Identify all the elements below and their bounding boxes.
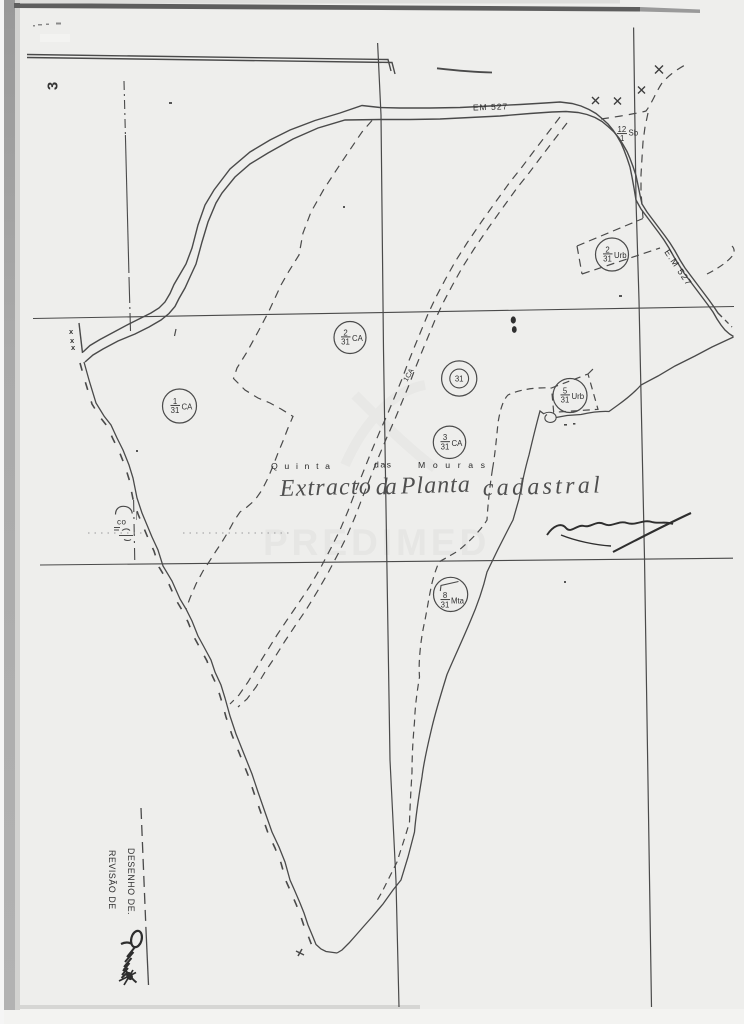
- svg-text:PREDIMED: PREDIMED: [263, 522, 490, 563]
- svg-text:8: 8: [443, 591, 447, 600]
- svg-text:EM 527: EM 527: [473, 101, 509, 112]
- svg-text:3: 3: [45, 82, 62, 90]
- svg-text:Urb: Urb: [572, 392, 585, 401]
- svg-text:2: 2: [343, 328, 347, 337]
- svg-text:CA: CA: [352, 334, 364, 343]
- svg-text:Mta: Mta: [451, 597, 465, 606]
- svg-text:31: 31: [441, 442, 450, 451]
- svg-text:12: 12: [618, 125, 627, 134]
- svg-text:da: da: [375, 474, 397, 501]
- svg-text:1: 1: [173, 397, 177, 406]
- svg-text:M o u r a s: M o u r a s: [418, 460, 486, 470]
- svg-text:Sb: Sb: [629, 129, 639, 138]
- svg-text:31: 31: [441, 600, 450, 609]
- svg-text:31: 31: [171, 406, 180, 415]
- svg-text:1: 1: [620, 134, 624, 143]
- svg-text:co: co: [117, 518, 127, 527]
- svg-text:31: 31: [455, 375, 464, 384]
- svg-text:DESENHO DE.: DESENHO DE.: [126, 848, 136, 915]
- svg-text:REVISÃO DE: REVISÃO DE: [107, 850, 117, 910]
- svg-text:das: das: [374, 460, 392, 470]
- svg-text:2: 2: [605, 245, 609, 254]
- svg-text:31: 31: [341, 338, 350, 347]
- svg-text:31: 31: [603, 255, 612, 264]
- svg-text:31: 31: [561, 396, 570, 405]
- svg-text:Q u i n t a: Q u i n t a: [271, 461, 330, 471]
- svg-text:5: 5: [563, 386, 568, 395]
- svg-text:3: 3: [443, 433, 447, 442]
- svg-text:CA: CA: [182, 403, 194, 412]
- svg-text:Urb: Urb: [614, 251, 627, 260]
- svg-text:CA: CA: [452, 439, 464, 448]
- svg-text:Planta: Planta: [399, 472, 470, 500]
